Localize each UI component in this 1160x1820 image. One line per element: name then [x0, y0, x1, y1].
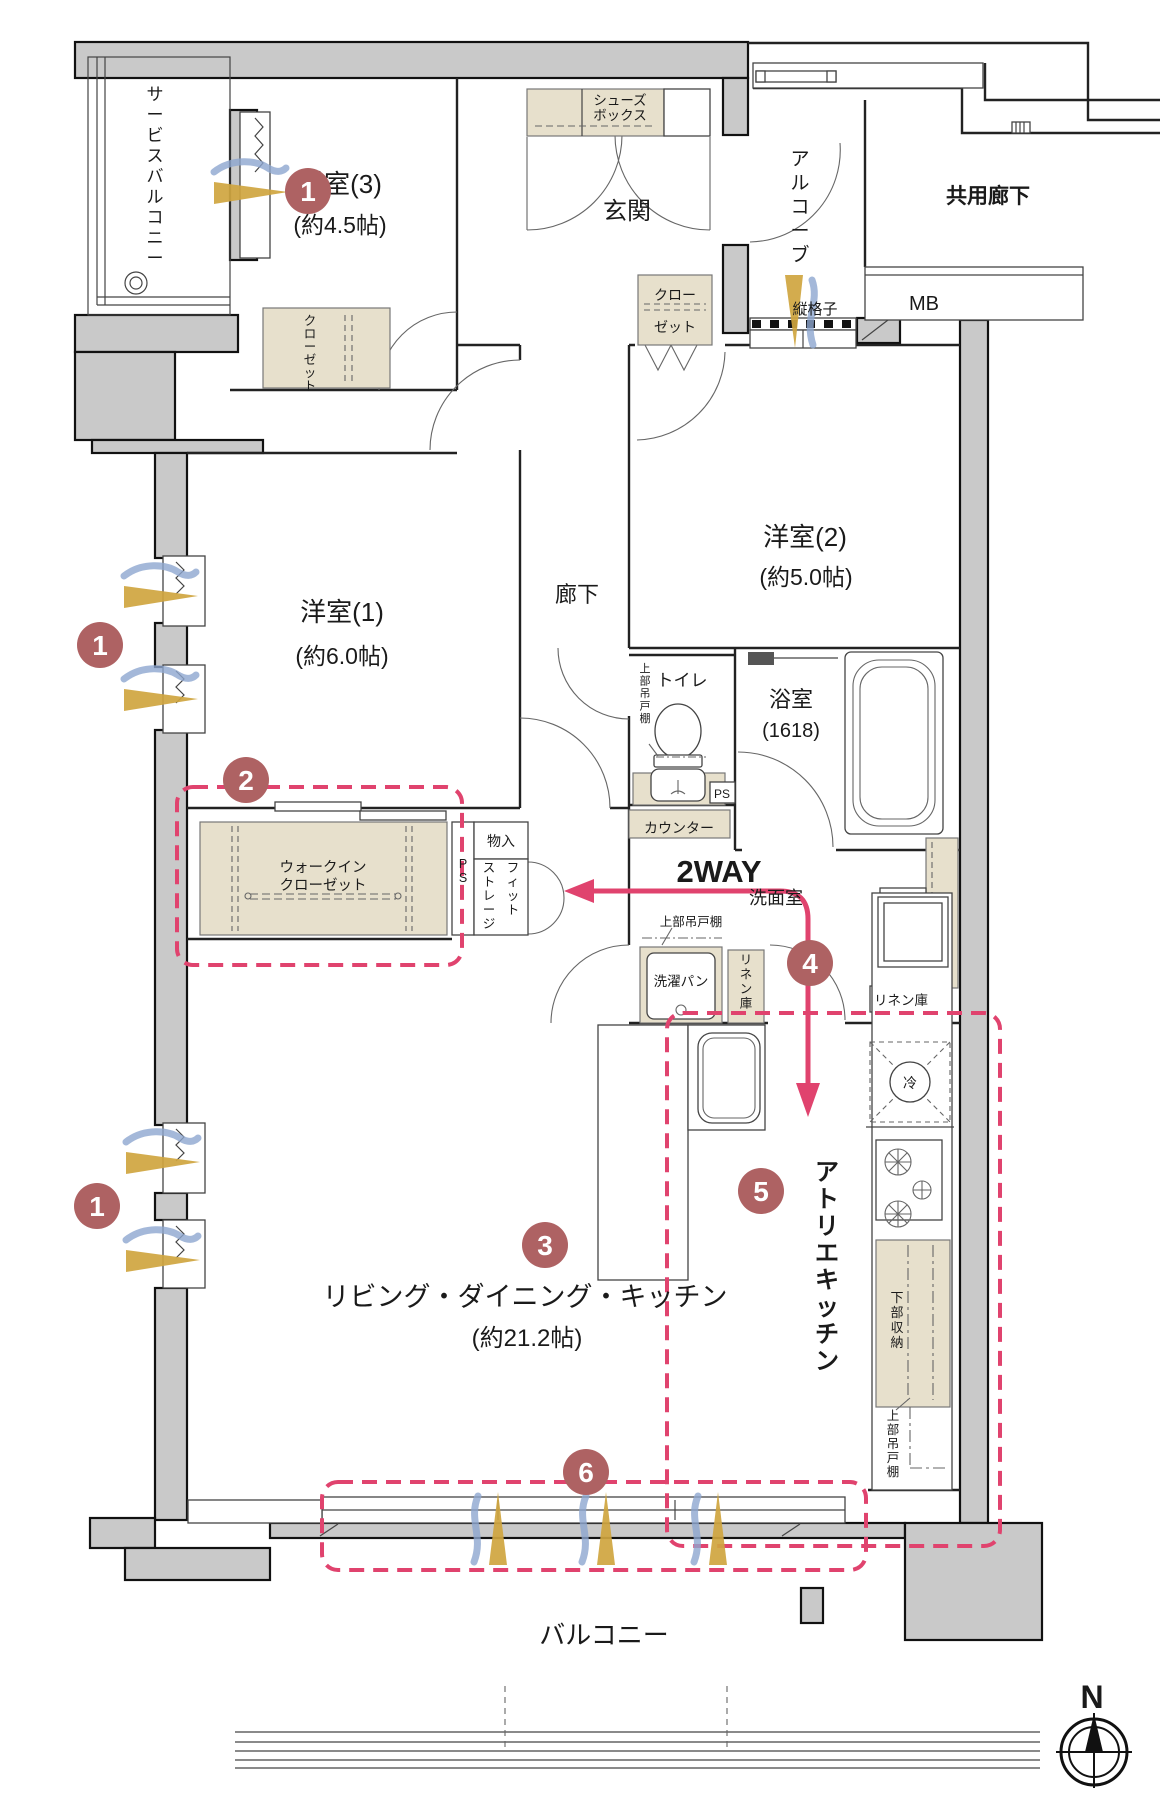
common-corridor-label: 共用廊下	[946, 184, 1030, 208]
shoebox-label-2: ボックス	[593, 108, 647, 123]
toilet-shelf-label: 上部吊戸棚	[640, 662, 651, 725]
linen-boxed-label: リネン庫	[874, 993, 928, 1008]
genkan-label: 玄関	[603, 198, 651, 225]
laundry-shelf-label: 上部吊戸棚	[660, 914, 723, 929]
interior-walls	[187, 78, 960, 1490]
marker-number: 1	[92, 630, 108, 661]
bath-size-label: (1618)	[762, 720, 820, 742]
marker-number: 6	[578, 1457, 594, 1488]
arrowhead-left	[564, 879, 594, 903]
marker-1-yoshitsu3: 1	[285, 168, 331, 214]
ps-toilet-label: PS	[714, 787, 730, 801]
monoire-label: 物入	[487, 833, 515, 849]
shoebox-label-1: シューズ	[593, 93, 646, 108]
marker-1-ldk: 1	[74, 1183, 120, 1229]
room-label-yoshitsu2: 洋室(2)	[763, 522, 847, 552]
lower-storage-label: 下部収納	[890, 1290, 903, 1350]
floorplan-page: サービスバルコニー 洋室(3) (約4.5帖) 玄関 シューズ ボックス アルコ…	[0, 0, 1160, 1820]
compass-n-label: N	[1080, 1679, 1103, 1715]
closet-genkan-label-2: ゼット	[654, 319, 696, 335]
bath-label: 浴室	[769, 687, 813, 712]
marker-number: 2	[238, 765, 254, 796]
rei-label: 冷	[903, 1075, 917, 1091]
marker-number: 4	[802, 948, 818, 979]
closet-genkan-label-1: クロー	[654, 287, 696, 303]
fit-storage-label-1: フィット	[507, 861, 520, 917]
marker-3-ldk: 3	[522, 1222, 568, 1268]
mb-label: MB	[909, 293, 939, 315]
two-way-label: 2WAY	[676, 854, 761, 889]
ps-shaft-label: PS	[459, 857, 467, 885]
wic-label-1: ウォークイン	[280, 859, 367, 876]
marker-number: 1	[89, 1191, 105, 1222]
counter-label: カウンター	[644, 820, 714, 836]
marker-number: 5	[753, 1176, 769, 1207]
closet-y3-label: クローゼット	[304, 314, 317, 393]
kitchen-shelf-label: 上部吊戸棚	[887, 1409, 900, 1479]
room-size-yoshitsu3: (約4.5帖)	[293, 212, 386, 238]
atelier-kitchen-label: アトリエキッチン	[815, 1159, 839, 1375]
marker-5-kitchen: 5	[738, 1168, 784, 1214]
marker-1-yoshitsu1: 1	[77, 622, 123, 668]
sentaku-pan-label: 洗濯パン	[654, 974, 709, 989]
wic-label-2: クローゼット	[280, 877, 367, 894]
roka-label: 廊下	[555, 582, 599, 607]
marker-number: 1	[300, 176, 316, 207]
marker-6-windows: 6	[563, 1449, 609, 1495]
marker-4-twoway: 4	[787, 940, 833, 986]
tategoshi-label: 縦格子	[792, 301, 837, 318]
ldk-size-label: (約21.2帖)	[472, 1325, 583, 1352]
floorplan-svg: サービスバルコニー 洋室(3) (約4.5帖) 玄関 シューズ ボックス アルコ…	[0, 0, 1160, 1820]
room-size-yoshitsu1: (約6.0帖)	[295, 643, 388, 669]
fit-storage-label-2: ストレージ	[483, 861, 496, 931]
room-size-yoshitsu2: (約5.0帖)	[759, 564, 852, 590]
arrowhead-down	[796, 1083, 820, 1117]
marker-2-wic: 2	[223, 757, 269, 803]
balcony-label: バルコニー	[539, 1620, 668, 1650]
balcony-railing	[235, 1686, 1040, 1768]
marker-number: 3	[537, 1230, 553, 1261]
compass: N	[1056, 1679, 1132, 1788]
room-label-yoshitsu1: 洋室(1)	[300, 597, 384, 627]
senmen-label: 洗面室	[749, 888, 803, 908]
ldk-label: リビング・ダイニング・キッチン	[323, 1282, 728, 1312]
service-balcony-label: サービスバルコニー	[147, 85, 164, 268]
linen-vertical-label: リネン庫	[740, 953, 753, 1011]
alcove-label: アルコーブ	[790, 149, 809, 266]
toilet-label: トイレ	[657, 671, 708, 690]
storage-layer	[200, 89, 958, 1490]
